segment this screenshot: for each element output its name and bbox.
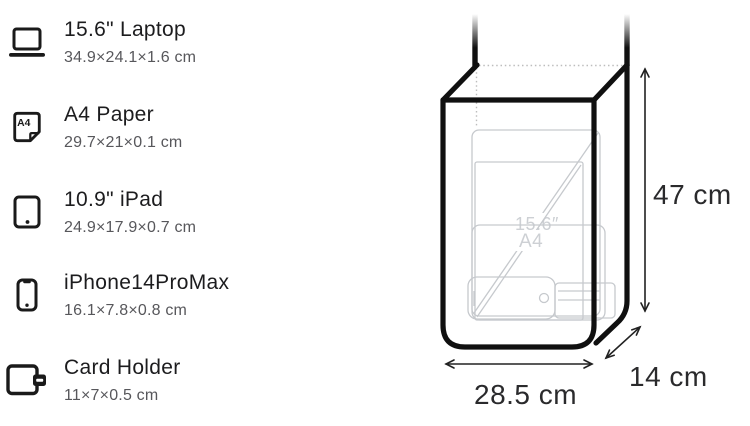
card-holder-icon-svg — [6, 364, 48, 396]
item-title: iPhone14ProMax — [64, 270, 229, 296]
iphone-icon-svg — [16, 278, 38, 312]
bag-dimension-diagram: 15.6″ A4 47 cm 28.5 cm 14 cm — [420, 0, 750, 426]
item-dims: 16.1×7.8×0.8 cm — [64, 302, 229, 320]
depth-dimension-label: 14 cm — [629, 361, 708, 392]
ipad-icon — [6, 195, 48, 229]
a4-paper-icon: A4 — [6, 110, 48, 145]
ghost-a4-label: A4 — [519, 231, 543, 252]
card-holder-icon — [6, 364, 48, 396]
bag-strap-right — [624, 14, 629, 66]
item-dims: 11×7×0.5 cm — [64, 387, 181, 405]
laptop-icon — [6, 27, 48, 58]
item-title: 15.6" Laptop — [64, 17, 196, 43]
item-list: 15.6" Laptop 34.9×24.1×1.6 cm A4 A4 Pape… — [6, 0, 336, 426]
item-text: iPhone14ProMax 16.1×7.8×0.8 cm — [64, 270, 229, 320]
item-text: A4 Paper 29.7×21×0.1 cm — [64, 102, 182, 152]
list-item-card-holder: Card Holder 11×7×0.5 cm — [6, 355, 181, 405]
list-item-laptop: 15.6" Laptop 34.9×24.1×1.6 cm — [6, 17, 196, 67]
bag-top-right-edge — [594, 65, 627, 100]
item-dims: 29.7×21×0.1 cm — [64, 134, 182, 152]
item-title: Card Holder — [64, 355, 181, 381]
a4-paper-icon-svg: A4 — [10, 110, 44, 145]
item-dims: 24.9×17.9×0.7 cm — [64, 219, 196, 237]
width-dimension-label: 28.5 cm — [474, 379, 577, 410]
height-dimension-label: 47 cm — [653, 179, 732, 210]
bag-hidden-edges — [477, 66, 626, 128]
item-text: Card Holder 11×7×0.5 cm — [64, 355, 181, 405]
list-item-a4-paper: A4 A4 Paper 29.7×21×0.1 cm — [6, 102, 182, 152]
bag-top-left-edge — [443, 65, 477, 100]
item-text: 10.9" iPad 24.9×17.9×0.7 cm — [64, 187, 196, 237]
iphone-icon — [6, 278, 48, 312]
laptop-icon-svg — [8, 27, 46, 58]
item-dims: 34.9×24.1×1.6 cm — [64, 49, 196, 67]
ghost-iphone-camera — [540, 294, 549, 303]
list-item-ipad: 10.9" iPad 24.9×17.9×0.7 cm — [6, 187, 196, 237]
item-text: 15.6" Laptop 34.9×24.1×1.6 cm — [64, 17, 196, 67]
bag-strap-left — [472, 14, 477, 66]
item-title: 10.9" iPad — [64, 187, 196, 213]
list-item-iphone: iPhone14ProMax 16.1×7.8×0.8 cm — [6, 270, 229, 320]
ipad-icon-svg — [13, 195, 41, 229]
item-title: A4 Paper — [64, 102, 182, 128]
a4-icon-label: A4 — [17, 118, 30, 129]
ghost-iphone — [468, 277, 555, 319]
